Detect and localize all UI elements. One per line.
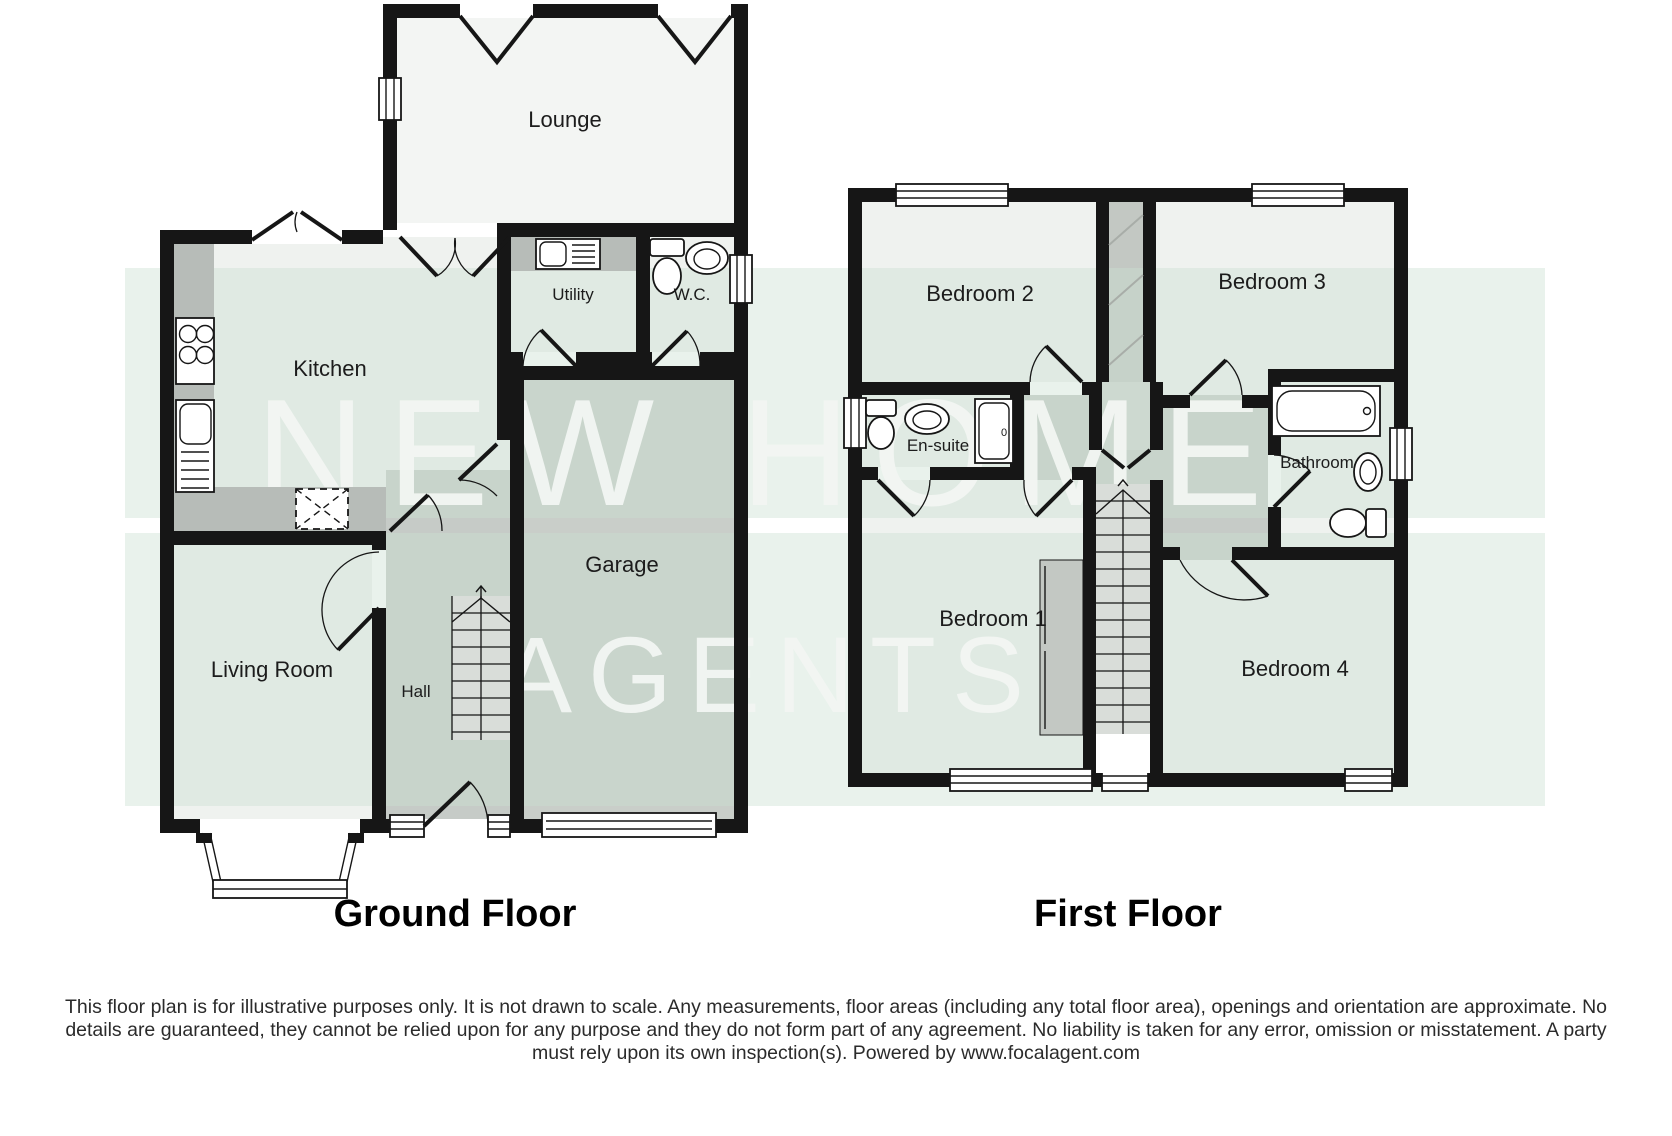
- wardrobe: [1040, 560, 1083, 735]
- room-label-wc: W.C.: [674, 285, 711, 304]
- first-floor-title: First Floor: [1034, 893, 1222, 935]
- ensuite-toilet-icon: [866, 400, 896, 449]
- hob-icon: [176, 318, 214, 384]
- disclaimer-line-1: This floor plan is for illustrative purp…: [65, 996, 1607, 1018]
- disclaimer-line-3: must rely upon its own inspection(s). Po…: [532, 1042, 1140, 1064]
- shower-icon: 0: [975, 399, 1013, 463]
- room-label-living-room: Living Room: [211, 657, 333, 682]
- floorplan-page: NEW HOME AGENTS: [0, 0, 1672, 1136]
- room-label-hall: Hall: [401, 682, 430, 701]
- lounge-window: [379, 78, 401, 120]
- disclaimer-line-2: details are guaranteed, they cannot be r…: [65, 1019, 1607, 1041]
- bathroom-window: [1390, 428, 1412, 480]
- room-label-bedroom3: Bedroom 3: [1218, 269, 1326, 294]
- room-label-lounge: Lounge: [528, 107, 601, 132]
- ground-floor-title: Ground Floor: [334, 893, 577, 935]
- room-label-ensuite: En-suite: [907, 436, 969, 455]
- room-label-bedroom2: Bedroom 2: [926, 281, 1034, 306]
- bay-window: [196, 833, 364, 898]
- bedroom2-window: [896, 184, 1008, 206]
- watermark-text-agents: AGENTS: [500, 614, 1040, 735]
- svg-text:0: 0: [1001, 427, 1007, 439]
- room-label-bedroom4: Bedroom 4: [1241, 656, 1349, 681]
- bedroom3-window: [1252, 184, 1344, 206]
- appliance-space-icon: [296, 489, 348, 529]
- room-label-bedroom1: Bedroom 1: [939, 606, 1047, 631]
- kitchen-sink-icon: [176, 400, 214, 492]
- bathroom-basin-icon: [1354, 453, 1382, 491]
- wc-basin-icon: [686, 242, 728, 274]
- ensuite-window: [844, 398, 866, 448]
- hall-staircase: [452, 586, 510, 740]
- landing-staircase: [1096, 480, 1150, 773]
- room-label-kitchen: Kitchen: [293, 356, 366, 381]
- bedroom4-window: [1345, 769, 1392, 791]
- hall-window-left: [390, 815, 424, 837]
- kitchen-window: [252, 212, 342, 244]
- room-label-utility: Utility: [552, 285, 594, 304]
- floorplan-image: NEW HOME AGENTS: [0, 0, 1672, 1136]
- bedroom1-window: [950, 769, 1092, 791]
- wc-window: [730, 255, 752, 303]
- bath-icon: [1272, 386, 1380, 436]
- room-label-bathroom: Bathroom: [1280, 453, 1354, 472]
- utility-sink-icon: [536, 239, 600, 269]
- garage-door: [542, 813, 716, 837]
- kitchen-counter-bottom: [174, 487, 386, 531]
- disclaimer: This floor plan is for illustrative purp…: [65, 996, 1607, 1064]
- bathroom-toilet-icon: [1330, 509, 1386, 537]
- ensuite-basin-icon: [905, 404, 949, 434]
- hall-window-right: [488, 815, 510, 837]
- room-label-garage: Garage: [585, 552, 658, 577]
